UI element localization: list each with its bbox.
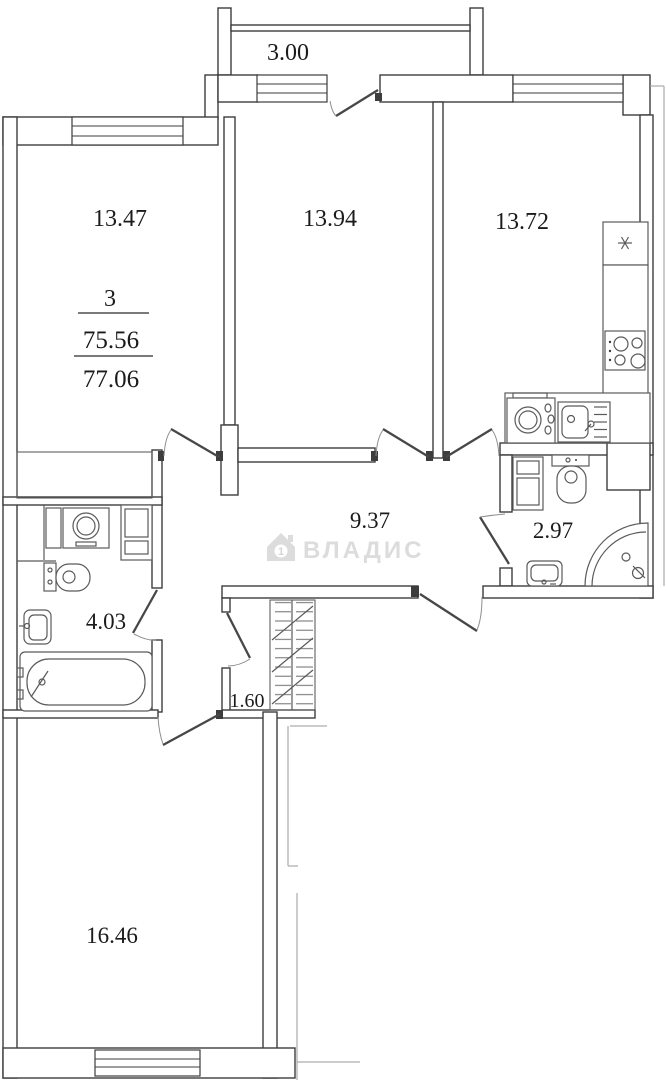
wall-step-left-of-balcony	[205, 75, 218, 119]
wardrobe-hatch	[17, 452, 152, 498]
label-closet-area: 1.60	[230, 690, 265, 712]
cabinet-icon	[513, 457, 543, 510]
wall-divider-left	[224, 117, 235, 425]
duct-bath-right	[607, 443, 650, 490]
title-living-area: 75.56	[83, 327, 139, 354]
wall-bath-left-right-upper	[152, 450, 162, 588]
watermark: 1 ВЛАДИС	[267, 533, 424, 564]
duct-kitchen-corner	[623, 75, 650, 115]
bathroom-left-fixtures	[17, 505, 152, 711]
label-hallway-area: 9.37	[350, 508, 390, 533]
labels: 3.00 13.47 13.94 13.72 9.37 2.97 4.03 1.…	[74, 40, 573, 948]
window-kitchen	[513, 75, 623, 102]
label-living-room-area: 16.46	[86, 923, 138, 948]
label-bedroom-middle-area: 13.94	[303, 206, 357, 232]
sink-left-icon	[19, 610, 51, 644]
watermark-number: 1	[278, 546, 284, 558]
sink-right-icon	[527, 561, 562, 586]
doors	[133, 90, 509, 745]
door-living-room	[158, 710, 223, 745]
toilet-right-icon	[552, 455, 589, 503]
title-rooms-count: 3	[104, 286, 116, 312]
wall-bath-right-left-upper	[500, 455, 512, 512]
door-bedroom-left	[158, 429, 223, 461]
wardrobe-bedroom-left	[17, 452, 152, 498]
wall-balcony-bottom-left	[218, 75, 258, 102]
balcony-outer-wall	[231, 25, 470, 31]
stove-icon	[605, 331, 645, 370]
window-living-room	[95, 1050, 200, 1076]
door-bathroom-left	[133, 590, 157, 640]
wall-divider-foot	[221, 425, 238, 495]
wall-hallway-top	[238, 448, 375, 462]
toilet-left-icon	[44, 563, 90, 591]
door-entrance	[411, 586, 482, 631]
label-bathroom-left-area: 4.03	[86, 609, 126, 634]
wall-outer-left	[3, 117, 17, 1078]
watermark-brand: ВЛАДИС	[303, 537, 424, 564]
balcony-pillar-right	[470, 8, 483, 75]
door-bathroom-right	[480, 514, 509, 564]
door-bedroom-middle	[371, 429, 433, 461]
kitchen-fixtures	[505, 222, 650, 443]
door-balcony	[330, 90, 382, 116]
shelf-column-right	[293, 601, 314, 709]
balcony-pillar-left	[218, 8, 231, 75]
shelf-column-left	[271, 601, 291, 709]
washing-machine-kitchen-icon	[507, 398, 555, 443]
door-kitchen	[443, 429, 499, 461]
wall-hallway-bottom-left	[222, 586, 418, 598]
wall-bath-left-right-lower	[152, 640, 162, 712]
washing-machine-icon	[63, 508, 109, 548]
closet-shelving	[270, 600, 315, 710]
window-bedroom-left	[72, 117, 183, 145]
wall-divider-right	[433, 102, 443, 458]
watermark-house-icon: 1	[267, 533, 295, 561]
wall-bath-right-left-lower	[500, 568, 512, 586]
door-closet	[227, 613, 250, 666]
label-bedroom-left-area: 13.47	[93, 206, 147, 232]
label-kitchen-area: 13.72	[495, 209, 549, 235]
wall-balcony-bottom-right	[380, 75, 513, 102]
title-total-area: 77.06	[83, 366, 139, 393]
wall-hallway-bottom-right	[483, 586, 653, 598]
floor-plan: 1 ВЛАДИС 3.00 13.47 13.94 13.72 9.37 2.9…	[0, 0, 666, 1080]
corner-shower-icon	[585, 523, 648, 586]
label-balcony-area: 3.00	[267, 40, 309, 66]
title-block: 3 75.56 77.06	[74, 286, 153, 393]
wall-closet-left-upper	[222, 598, 230, 612]
cabinet-narrow	[46, 508, 61, 548]
kitchen-sink-icon	[558, 402, 610, 442]
bathtub-icon	[17, 652, 152, 711]
wall-living-right	[263, 712, 277, 1078]
cabinet-tall-icon	[121, 505, 152, 560]
window-balcony	[257, 75, 327, 102]
label-bathroom-right-area: 2.97	[533, 518, 573, 543]
floor-plan-drawing: 1 ВЛАДИС 3.00 13.47 13.94 13.72 9.37 2.9…	[0, 0, 666, 1080]
